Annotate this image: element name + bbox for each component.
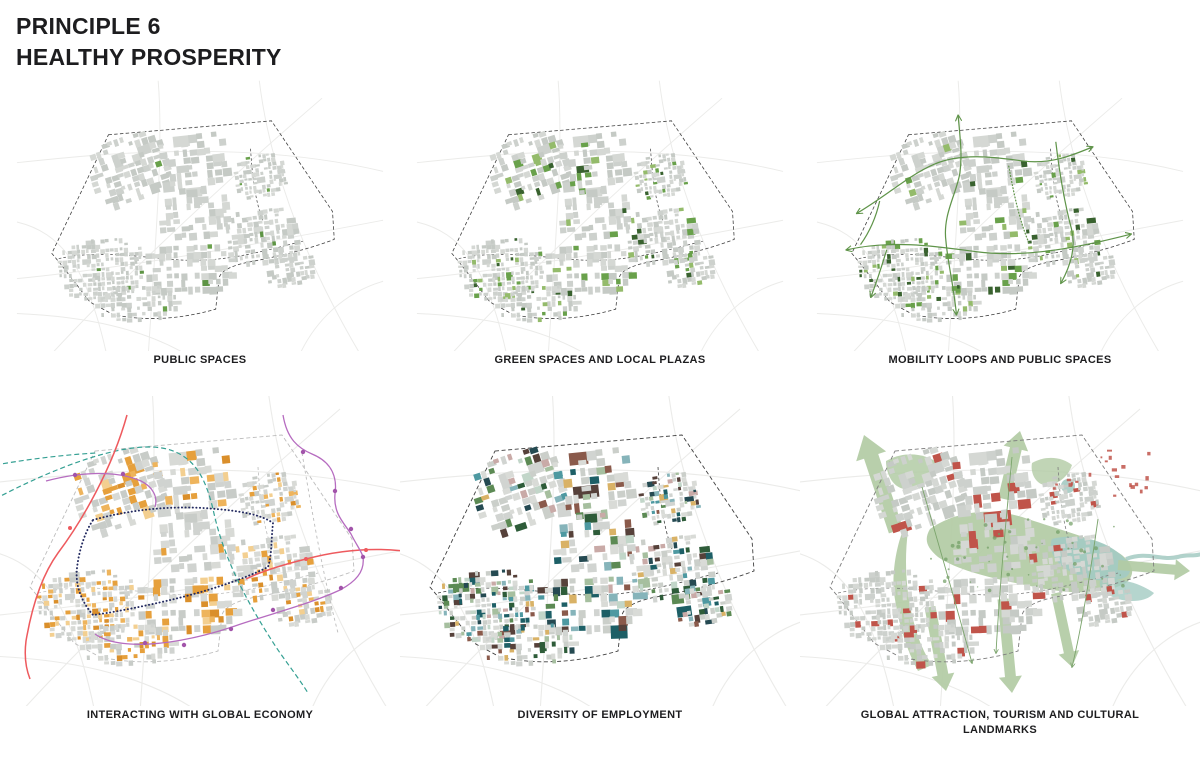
map-figure-employment: DIVERSITY OF EMPLOYMENT: [400, 396, 800, 738]
map-canvas-tourism: [800, 396, 1200, 706]
map-canvas-employment: [400, 396, 800, 706]
maps-grid: PUBLIC SPACES GREEN SPACES AND LOCAL PLA…: [0, 73, 1200, 738]
map-caption-tourism: GLOBAL ATTRACTION, TOURISM AND CULTURAL …: [838, 708, 1162, 738]
map-caption-employment: DIVERSITY OF EMPLOYMENT: [518, 708, 683, 723]
map-caption-public-spaces: PUBLIC SPACES: [154, 353, 247, 368]
map-figure-tourism: GLOBAL ATTRACTION, TOURISM AND CULTURAL …: [800, 396, 1200, 738]
map-figure-global-economy: INTERACTING WITH GLOBAL ECONOMY: [0, 396, 400, 738]
map-canvas-public-spaces: [0, 79, 400, 351]
page-title: PRINCIPLE 6 HEALTHY PROSPERITY: [0, 0, 1200, 73]
map-figure-green-plazas: GREEN SPACES AND LOCAL PLAZAS: [400, 79, 800, 368]
map-caption-green-plazas: GREEN SPACES AND LOCAL PLAZAS: [494, 353, 705, 368]
map-canvas-global-economy: [0, 396, 400, 706]
title-line-1: PRINCIPLE 6: [16, 11, 1200, 42]
map-caption-mobility-loops: MOBILITY LOOPS AND PUBLIC SPACES: [888, 353, 1111, 368]
map-canvas-mobility-loops: [800, 79, 1200, 351]
map-caption-global-economy: INTERACTING WITH GLOBAL ECONOMY: [87, 708, 313, 723]
map-figure-mobility-loops: MOBILITY LOOPS AND PUBLIC SPACES: [800, 79, 1200, 368]
map-figure-public-spaces: PUBLIC SPACES: [0, 79, 400, 368]
map-canvas-green-plazas: [400, 79, 800, 351]
title-line-2: HEALTHY PROSPERITY: [16, 42, 1200, 73]
page-header: PRINCIPLE 6 HEALTHY PROSPERITY: [0, 0, 1200, 73]
